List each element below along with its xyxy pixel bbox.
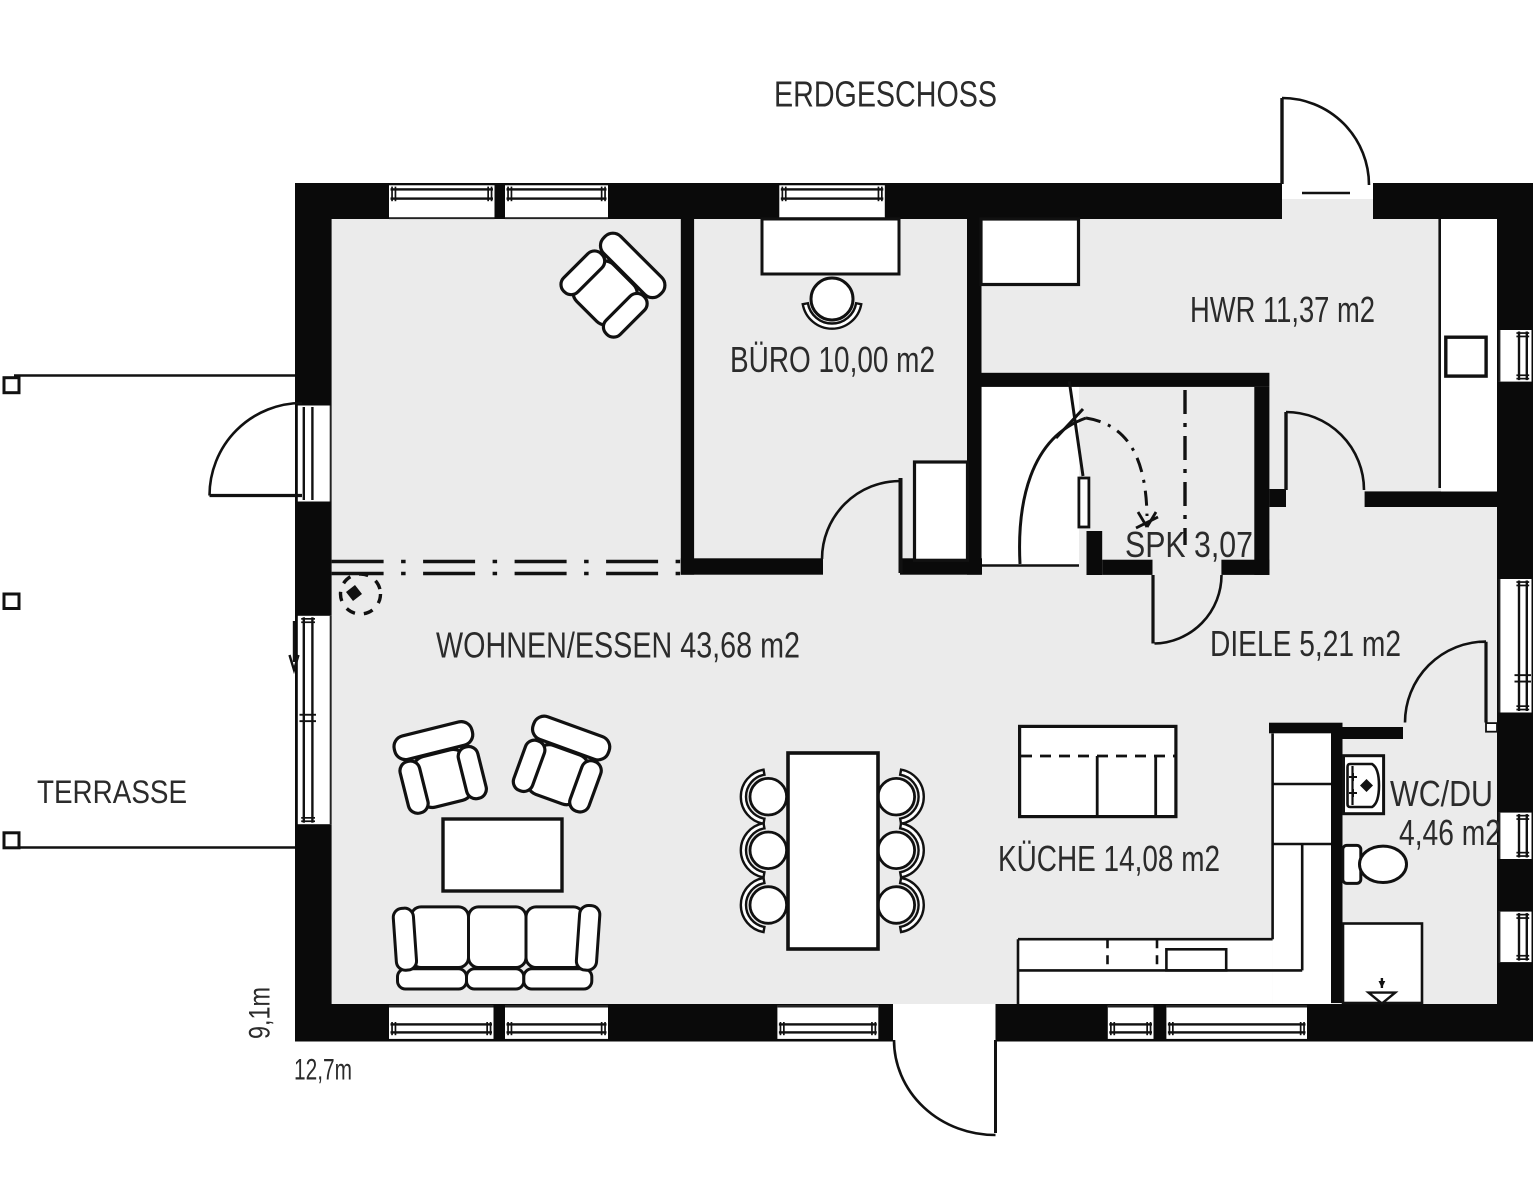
svg-text:DIELE 5,21 m2: DIELE 5,21 m2 (1210, 623, 1401, 664)
svg-text:KÜCHE 14,08 m2: KÜCHE 14,08 m2 (998, 838, 1220, 879)
svg-text:HWR 11,37 m2: HWR 11,37 m2 (1190, 289, 1375, 330)
svg-text:4,46 m2: 4,46 m2 (1399, 812, 1501, 853)
svg-text:WOHNEN/ESSEN 43,68 m2: WOHNEN/ESSEN 43,68 m2 (436, 625, 800, 666)
svg-text:WC/DU: WC/DU (1390, 773, 1493, 814)
svg-text:BÜRO 10,00 m2: BÜRO 10,00 m2 (730, 339, 935, 380)
svg-text:12,7m: 12,7m (294, 1054, 352, 1087)
svg-text:9,1m: 9,1m (244, 987, 277, 1039)
svg-text:SPK 3,07: SPK 3,07 (1125, 524, 1253, 565)
svg-text:TERRASSE: TERRASSE (37, 774, 187, 810)
svg-text:ERDGESCHOSS: ERDGESCHOSS (774, 74, 997, 115)
